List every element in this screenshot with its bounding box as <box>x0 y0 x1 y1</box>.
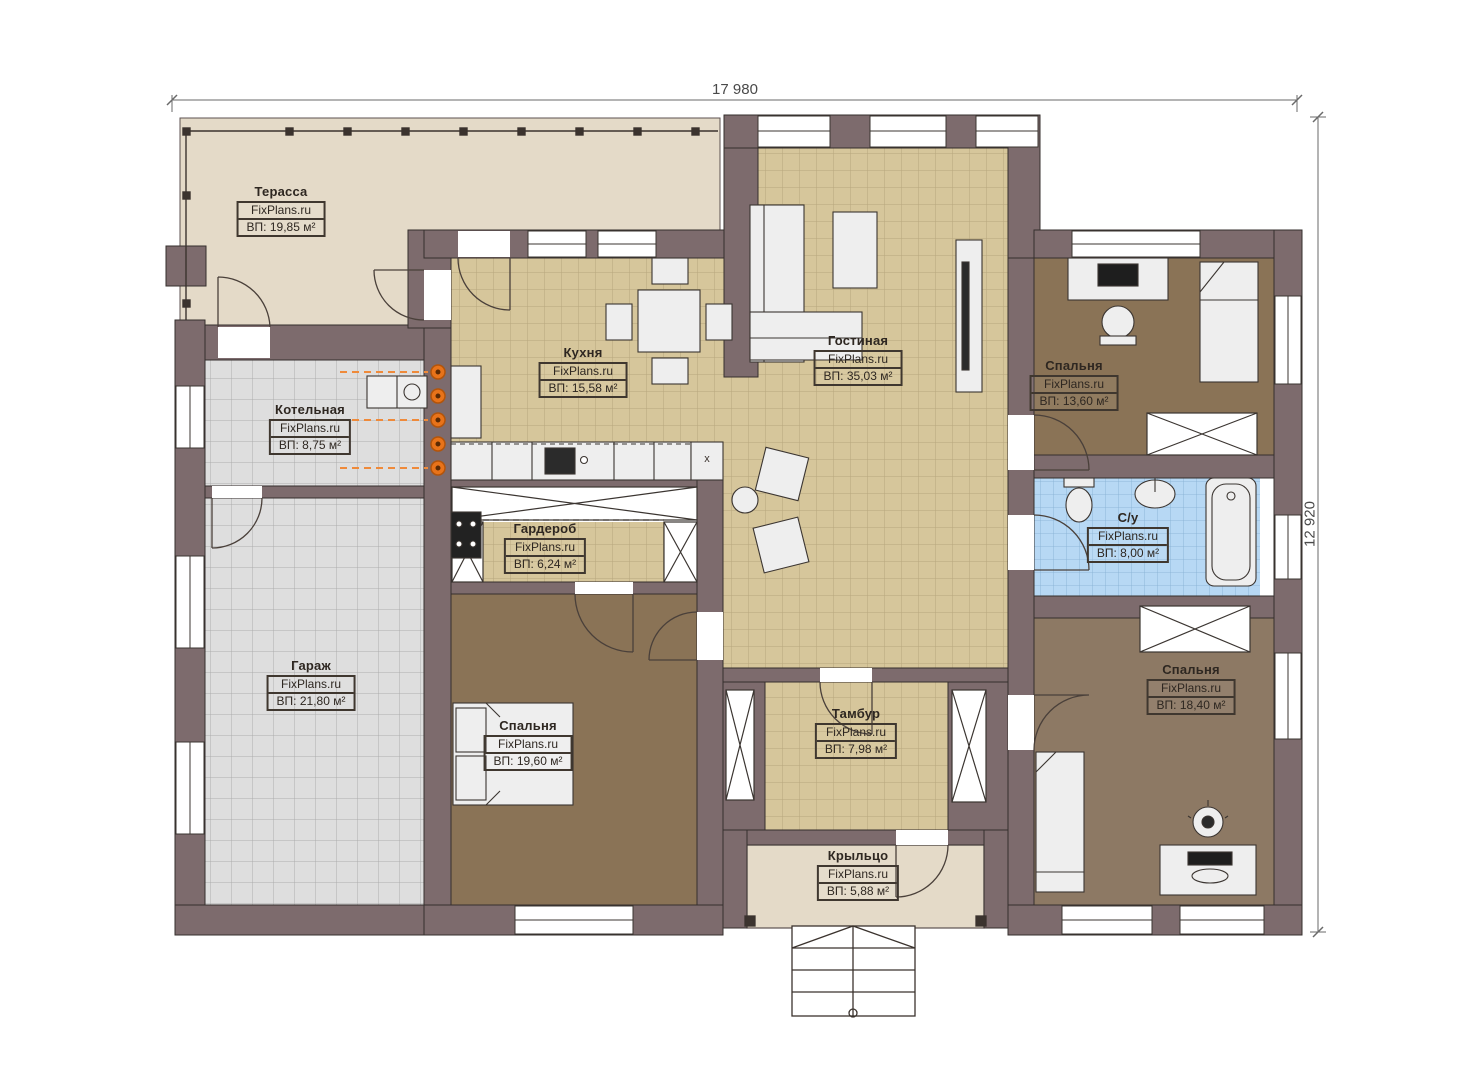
entry-stairs <box>745 916 986 1017</box>
room-label-living-room: Гостиная FixPlans.ru ВП: 35,03 м² <box>814 333 903 386</box>
porch-post <box>976 916 986 926</box>
window <box>598 231 656 257</box>
room-info-box: FixPlans.ru ВП: 5,88 м² <box>817 865 899 901</box>
bathtub <box>1206 478 1256 586</box>
window <box>976 116 1038 147</box>
room-name: Спальня <box>1030 358 1119 373</box>
closet-x <box>452 487 697 520</box>
room-info-box: FixPlans.ru ВП: 8,00 м² <box>1087 527 1169 563</box>
floor-plan-page: 17 980 12 920 x Терасса FixPlans.ru ВП: … <box>0 0 1473 1080</box>
bed-br <box>1036 752 1084 892</box>
window <box>528 231 586 257</box>
room-name: Спальня <box>1147 662 1236 677</box>
room-watermark: FixPlans.ru <box>817 725 895 742</box>
room-area: ВП: 19,85 м² <box>239 220 324 235</box>
room-area: ВП: 19,60 м² <box>486 754 571 769</box>
window <box>758 116 830 147</box>
window <box>1072 231 1200 257</box>
porch-post <box>745 916 755 926</box>
room-info-box: FixPlans.ru ВП: 35,03 м² <box>814 350 903 386</box>
window <box>1180 906 1264 934</box>
room-watermark: FixPlans.ru <box>506 540 584 557</box>
room-label-bedroom-bottom-right: Спальня FixPlans.ru ВП: 18,40 м² <box>1147 662 1236 715</box>
room-area: ВП: 5,88 м² <box>819 884 897 899</box>
room-info-box: FixPlans.ru ВП: 6,24 м² <box>504 538 586 574</box>
floor-plan-drawing <box>0 0 1473 1080</box>
room-label-bathroom: С/у FixPlans.ru ВП: 8,00 м² <box>1087 510 1169 563</box>
room-label-bedroom-top-right: Спальня FixPlans.ru ВП: 13,60 м² <box>1030 358 1119 411</box>
room-watermark: FixPlans.ru <box>1032 377 1117 394</box>
room-info-box: FixPlans.ru ВП: 13,60 м² <box>1030 375 1119 411</box>
room-name: С/у <box>1087 510 1169 525</box>
desk-tr <box>1068 258 1168 300</box>
closet-x <box>952 690 986 802</box>
window <box>1275 515 1301 579</box>
room-area: ВП: 8,75 м² <box>271 438 349 453</box>
room-info-box: FixPlans.ru ВП: 19,60 м² <box>484 735 573 771</box>
bed-tr <box>1200 262 1258 382</box>
dimension-height-label: 12 920 <box>1302 501 1319 547</box>
room-name: Крыльцо <box>817 848 899 863</box>
room-area: ВП: 13,60 м² <box>1032 394 1117 409</box>
room-area: ВП: 7,98 м² <box>817 742 895 757</box>
room-name: Гараж <box>267 658 356 673</box>
closet-x <box>1140 606 1250 652</box>
room-area: ВП: 6,24 м² <box>506 557 584 572</box>
vent-shaft-label: x <box>704 453 710 465</box>
room-name: Терасса <box>237 184 326 199</box>
kitchen-stove <box>451 512 481 558</box>
room-area: ВП: 15,58 м² <box>541 381 626 396</box>
room-info-box: FixPlans.ru ВП: 8,75 м² <box>269 419 351 455</box>
room-watermark: FixPlans.ru <box>819 867 897 884</box>
room-watermark: FixPlans.ru <box>816 352 901 369</box>
tv-stand <box>956 240 982 392</box>
window <box>1275 653 1301 739</box>
room-label-kitchen: Кухня FixPlans.ru ВП: 15,58 м² <box>539 345 628 398</box>
window <box>1275 296 1301 384</box>
closet-x <box>726 690 754 800</box>
window <box>176 742 204 834</box>
room-area: ВП: 18,40 м² <box>1149 698 1234 713</box>
kitchen-sink <box>545 448 575 474</box>
room-info-box: FixPlans.ru ВП: 19,85 м² <box>237 201 326 237</box>
room-name: Спальня <box>484 718 573 733</box>
room-area: ВП: 21,80 м² <box>269 694 354 709</box>
room-name: Кухня <box>539 345 628 360</box>
coffee-table <box>833 212 877 288</box>
boiler-unit <box>367 376 427 408</box>
closet-x <box>664 522 697 582</box>
room-label-garage: Гараж FixPlans.ru ВП: 21,80 м² <box>267 658 356 711</box>
desk-br <box>1160 845 1256 895</box>
window <box>176 386 204 448</box>
room-label-vestibule: Тамбур FixPlans.ru ВП: 7,98 м² <box>815 706 897 759</box>
window <box>515 906 633 934</box>
room-watermark: FixPlans.ru <box>541 364 626 381</box>
room-info-box: FixPlans.ru ВП: 18,40 м² <box>1147 679 1236 715</box>
side-table <box>732 487 758 513</box>
room-name: Котельная <box>269 402 351 417</box>
room-info-box: FixPlans.ru ВП: 7,98 м² <box>815 723 897 759</box>
room-info-box: FixPlans.ru ВП: 15,58 м² <box>539 362 628 398</box>
room-watermark: FixPlans.ru <box>269 677 354 694</box>
room-name: Гостиная <box>814 333 903 348</box>
room-watermark: FixPlans.ru <box>486 737 571 754</box>
room-area: ВП: 8,00 м² <box>1089 546 1167 561</box>
dimension-width-label: 17 980 <box>712 81 758 98</box>
closet-x <box>1147 413 1257 455</box>
room-label-porch: Крыльцо FixPlans.ru ВП: 5,88 м² <box>817 848 899 901</box>
room-label-boiler-room: Котельная FixPlans.ru ВП: 8,75 м² <box>269 402 351 455</box>
room-watermark: FixPlans.ru <box>239 203 324 220</box>
room-area: ВП: 35,03 м² <box>816 369 901 384</box>
window <box>176 556 204 648</box>
room-name: Гардероб <box>504 521 586 536</box>
room-name: Тамбур <box>815 706 897 721</box>
room-label-bedroom-left: Спальня FixPlans.ru ВП: 19,60 м² <box>484 718 573 771</box>
room-label-wardrobe: Гардероб FixPlans.ru ВП: 6,24 м² <box>504 521 586 574</box>
kitchen-fridge <box>451 366 481 438</box>
room-watermark: FixPlans.ru <box>1089 529 1167 546</box>
room-watermark: FixPlans.ru <box>271 421 349 438</box>
window <box>1062 906 1152 934</box>
window <box>870 116 946 147</box>
kitchen-counter <box>451 442 691 480</box>
room-label-terrace: Терасса FixPlans.ru ВП: 19,85 м² <box>237 184 326 237</box>
room-watermark: FixPlans.ru <box>1149 681 1234 698</box>
hall-floor <box>723 480 1008 680</box>
office-chair <box>1100 306 1136 345</box>
room-info-box: FixPlans.ru ВП: 21,80 м² <box>267 675 356 711</box>
